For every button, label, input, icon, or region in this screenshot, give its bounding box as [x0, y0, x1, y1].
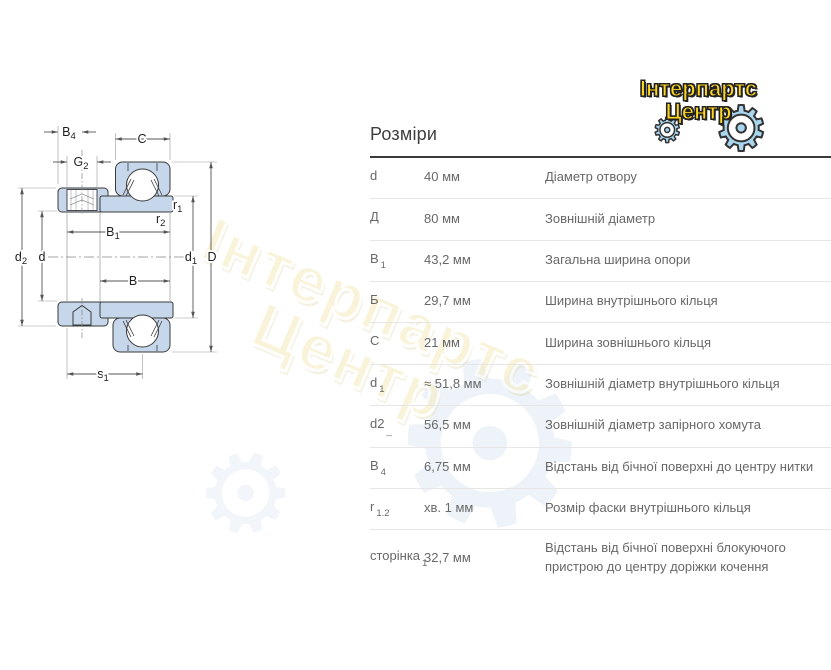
dim-label-d2: d2 [15, 250, 27, 267]
dim-symbol: B4 [370, 457, 424, 478]
brand-logo: ⚙ ⚙ Інтерпартс Центр [626, 74, 771, 158]
dim-value: хв. 1 мм [424, 499, 545, 518]
dim-value: 43,2 мм [424, 251, 545, 270]
table-row: d1 ≈ 51,8 мм Зовнішній діаметр внутрішнь… [370, 365, 831, 406]
dim-value: 80 мм [424, 210, 545, 229]
dim-description: Відстань від бічної поверхні до центру н… [545, 458, 831, 477]
dim-description: Ширина зовнішнього кільця [545, 334, 831, 353]
table-row: сторінка1 32,7 мм Відстань від бічної по… [370, 530, 831, 587]
table-row: B1 43,2 мм Загальна ширина опори [370, 241, 831, 282]
table-row: r1.2 хв. 1 мм Розмір фаски внутрішнього … [370, 489, 831, 530]
dim-label-s1: s1 [97, 367, 109, 384]
dim-symbol: Д [370, 208, 424, 229]
dim-label-D: D [207, 250, 216, 264]
table-row: C 21 мм Ширина зовнішнього кільця [370, 323, 831, 364]
dim-label-b1: B1 [106, 225, 120, 242]
dim-symbol: r1.2 [370, 498, 424, 519]
dim-symbol: d2_ [370, 415, 424, 436]
dim-description: Розмір фаски внутрішнього кільця [545, 499, 831, 518]
dim-value: 40 мм [424, 168, 545, 187]
dim-description: Зовнішній діаметр внутрішнього кільця [545, 375, 831, 394]
dim-value: 29,7 мм [424, 292, 545, 311]
logo-text-line2: Центр [626, 99, 771, 125]
dim-description: Зовнішній діаметр запірного хомута [545, 416, 831, 435]
dim-value: 6,75 мм [424, 458, 545, 477]
dim-description: Ширина внутрішнього кільця [545, 292, 831, 311]
dim-symbol: d1 [370, 374, 424, 395]
dim-description: Відстань від бічної поверхні блокуючого … [545, 539, 831, 577]
dim-label-r1: r1 [173, 198, 182, 215]
dimensions-table: Розміри d 40 мм Діаметр отвору Д 80 мм З… [370, 124, 831, 587]
dim-description: Діаметр отвору [545, 168, 831, 187]
dim-symbol: Б [370, 291, 424, 312]
dim-symbol: d [370, 167, 424, 188]
dim-label-b: B [129, 274, 137, 288]
table-row: d2_ 56,5 мм Зовнішній діаметр запірного … [370, 406, 831, 447]
dim-description: Загальна ширина опори [545, 251, 831, 270]
bearing-diagram: B4 G2 C r1 r2 B1 B d2 d d1 D s1 [0, 100, 250, 420]
table-row: Б 29,7 мм Ширина внутрішнього кільця [370, 282, 831, 323]
dim-description: Зовнішній діаметр [545, 210, 831, 229]
table-row: B4 6,75 мм Відстань від бічної поверхні … [370, 448, 831, 489]
dim-label-d1: d1 [185, 250, 197, 267]
dim-symbol: B1 [370, 250, 424, 271]
dim-label-d: d [39, 250, 46, 264]
dim-symbol: C [370, 332, 424, 353]
table-row: Д 80 мм Зовнішній діаметр [370, 199, 831, 240]
dim-label-b4: B4 [62, 125, 76, 142]
watermark-gear-small-icon: ⚙ [179, 418, 312, 570]
dim-symbol: сторінка1 [370, 547, 424, 568]
product-dimensions-page: ⚙ ⚙ Інтерпартс Центр ⚙ ⚙ Інтерпартс Цент… [0, 0, 831, 670]
dim-value: ≈ 51,8 мм [424, 375, 545, 394]
dim-value: 32,7 мм [424, 549, 545, 568]
dim-label-c: C [137, 132, 146, 146]
dim-label-r2: r2 [156, 212, 165, 229]
dim-label-g2: G2 [73, 155, 88, 172]
dim-value: 21 мм [424, 334, 545, 353]
dim-value: 56,5 мм [424, 416, 545, 435]
